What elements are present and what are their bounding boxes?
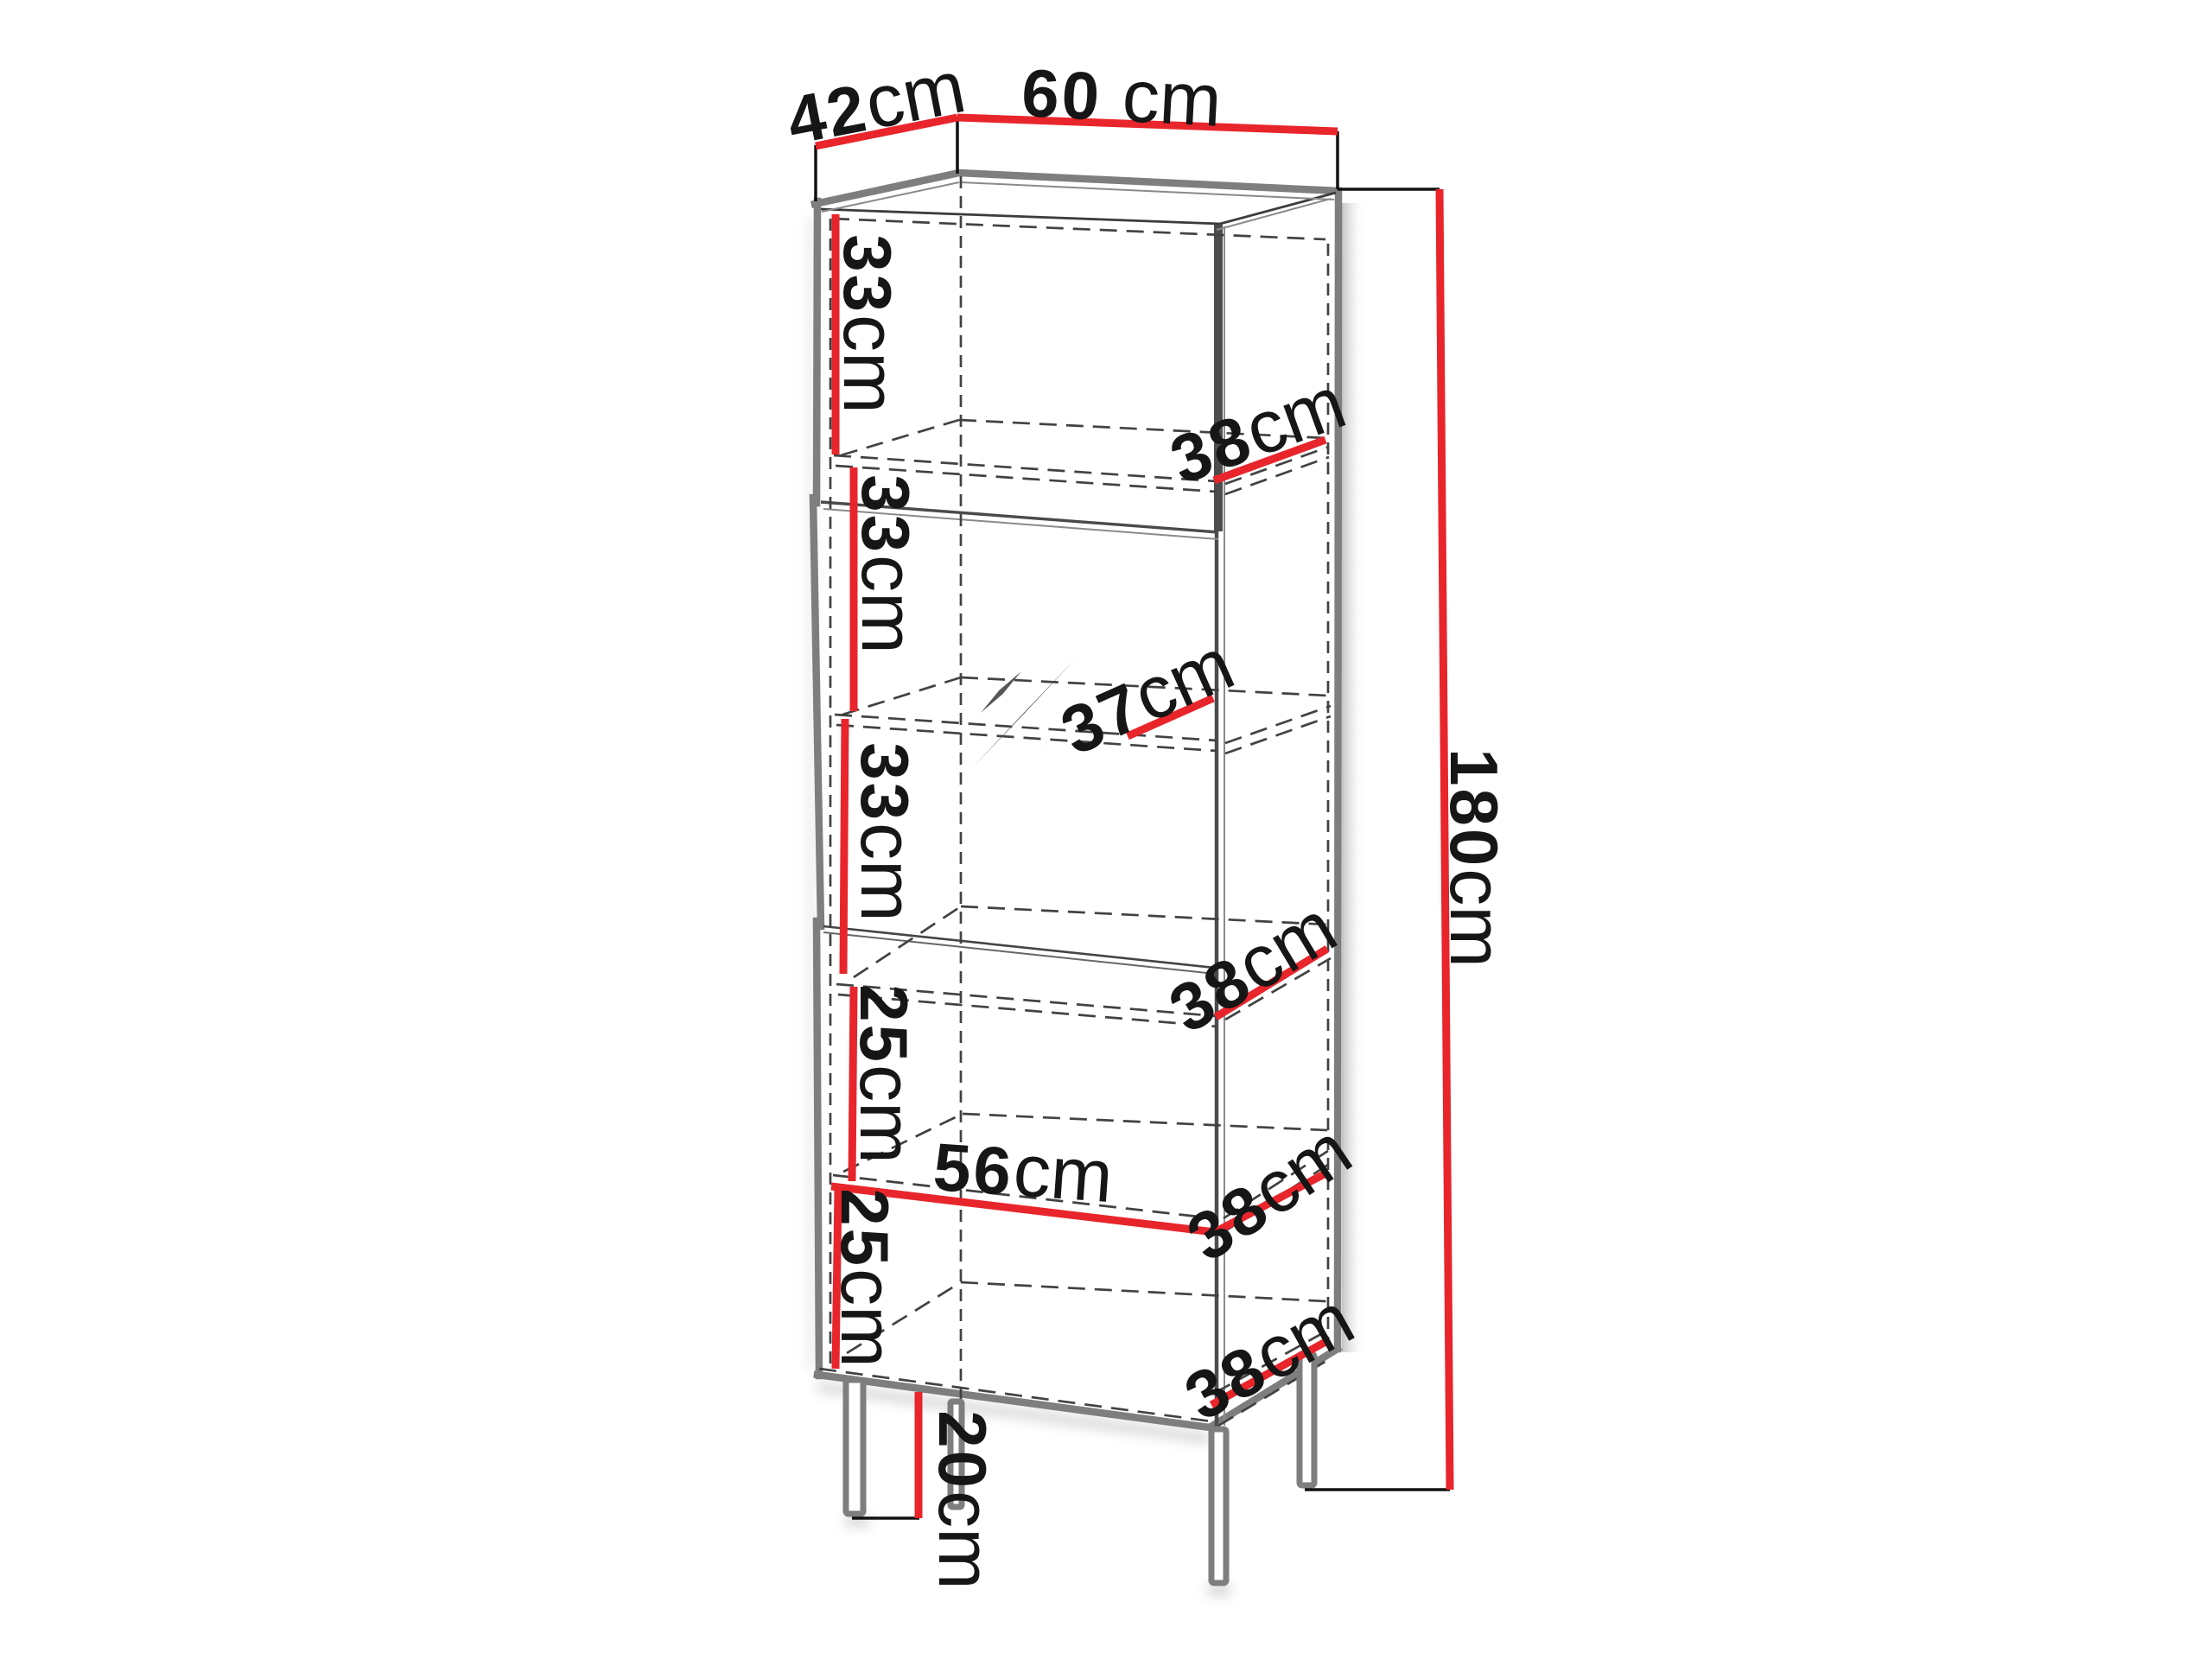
svg-text:60 cm: 60 cm (1020, 49, 1224, 143)
svg-text:33cm: 33cm (828, 234, 911, 413)
svg-text:56cm: 56cm (931, 1123, 1116, 1218)
svg-text:25cm: 25cm (844, 984, 927, 1163)
svg-text:33cm: 33cm (845, 742, 928, 921)
svg-text:33cm: 33cm (846, 474, 929, 653)
svg-text:20cm: 20cm (923, 1410, 1006, 1589)
svg-text:180cm: 180cm (1434, 748, 1517, 968)
svg-text:25cm: 25cm (825, 1188, 908, 1367)
